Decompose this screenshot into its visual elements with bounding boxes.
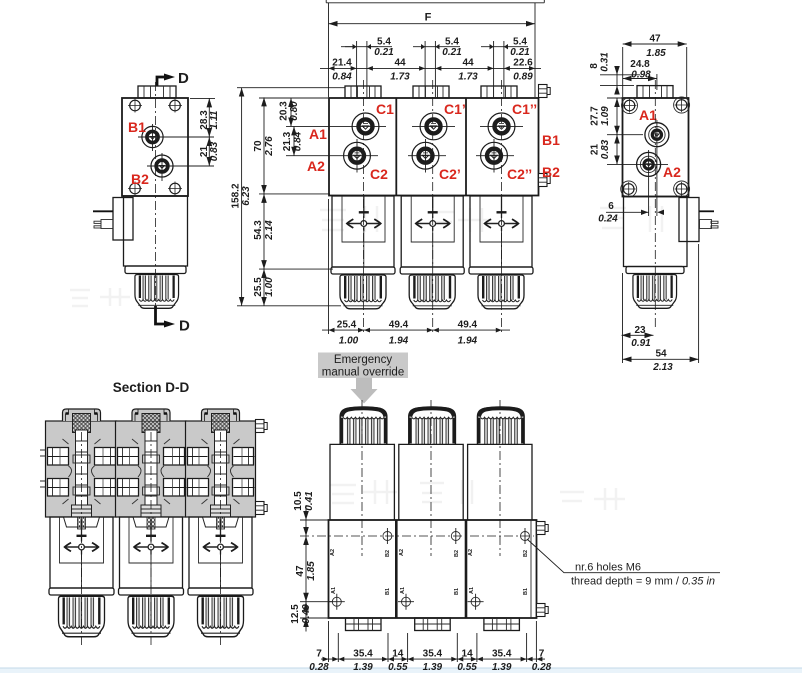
svg-text:1.09: 1.09 [600,106,611,126]
svg-text:25.4: 25.4 [337,320,357,331]
svg-text:27.7: 27.7 [590,106,601,126]
svg-text:12.5: 12.5 [290,604,301,624]
svg-text:2.13: 2.13 [652,362,673,373]
svg-text:0.28: 0.28 [309,662,329,673]
svg-text:1.85: 1.85 [646,48,666,59]
svg-text:20.3: 20.3 [279,101,290,121]
svg-text:35.4: 35.4 [353,649,373,660]
svg-text:158.2: 158.2 [231,183,242,208]
svg-text:0.21: 0.21 [510,47,530,58]
svg-text:47: 47 [649,34,661,45]
svg-text:7: 7 [316,649,322,660]
svg-text:1.11: 1.11 [209,110,220,129]
svg-text:F: F [425,12,432,24]
svg-text:A1: A1 [331,587,337,594]
svg-text:49.4: 49.4 [389,320,409,331]
svg-text:B1: B1 [454,588,460,595]
svg-text:B2: B2 [523,550,529,557]
svg-text:1.85: 1.85 [306,561,317,581]
svg-text:8: 8 [589,63,600,69]
svg-text:A2: A2 [663,164,681,180]
svg-text:21.3: 21.3 [282,131,293,151]
svg-text:C1’: C1’ [444,101,466,117]
svg-text:B1: B1 [385,588,391,595]
svg-text:1.39: 1.39 [353,662,373,673]
svg-text:35.4: 35.4 [492,649,512,660]
svg-text:35.4: 35.4 [423,649,443,660]
svg-text:0.80: 0.80 [289,101,300,121]
svg-text:1.94: 1.94 [458,336,478,347]
svg-text:10.5: 10.5 [293,491,304,511]
svg-text:D: D [178,70,189,87]
svg-text:44: 44 [462,58,474,69]
svg-text:1.39: 1.39 [492,662,512,673]
svg-text:14: 14 [462,649,474,660]
svg-text:22.6: 22.6 [513,58,533,69]
svg-text:24.8: 24.8 [630,59,650,70]
svg-text:A1: A1 [469,587,475,594]
svg-text:1.00: 1.00 [339,336,359,347]
svg-text:44: 44 [394,58,406,69]
svg-text:0.21: 0.21 [442,47,462,58]
svg-text:0.55: 0.55 [457,662,477,673]
svg-text:0.89: 0.89 [513,72,533,83]
svg-text:B1: B1 [128,119,146,135]
svg-text:0.55: 0.55 [388,662,408,673]
svg-text:21: 21 [590,144,601,156]
svg-text:1.73: 1.73 [458,72,478,83]
svg-text:0.91: 0.91 [631,338,651,349]
svg-text:5.4: 5.4 [445,37,459,48]
svg-text:0.49: 0.49 [301,604,312,624]
svg-text:2.76: 2.76 [264,136,275,157]
svg-text:6: 6 [608,201,614,212]
svg-text:thread depth = 9 mm / 0.35 in: thread depth = 9 mm / 0.35 in [571,576,715,588]
svg-text:23: 23 [634,325,646,336]
svg-text:B2: B2 [542,164,560,180]
svg-text:A2: A2 [307,158,325,174]
svg-text:1.94: 1.94 [389,336,409,347]
svg-text:0.84: 0.84 [332,72,352,83]
svg-text:0.84: 0.84 [293,131,304,151]
svg-text:C2’: C2’ [439,166,461,182]
svg-text:A1: A1 [309,126,327,142]
svg-text:B1: B1 [523,588,529,595]
svg-text:54: 54 [655,349,667,360]
svg-text:A1: A1 [639,107,657,123]
svg-text:21.4: 21.4 [332,58,352,69]
svg-text:0.21: 0.21 [374,47,394,58]
svg-text:14: 14 [392,649,404,660]
svg-text:0.31: 0.31 [600,52,611,72]
svg-text:Section D-D: Section D-D [113,380,190,395]
svg-text:A1: A1 [400,587,406,594]
svg-text:C2’’: C2’’ [507,166,532,182]
svg-text:A2: A2 [399,549,405,556]
svg-text:A2: A2 [468,549,474,556]
svg-text:0.28: 0.28 [532,662,552,673]
svg-text:1.00: 1.00 [264,277,275,297]
svg-text:B2: B2 [454,550,460,557]
svg-text:C1: C1 [376,101,394,117]
svg-text:49.4: 49.4 [458,320,478,331]
svg-text:0.83: 0.83 [600,139,611,159]
svg-text:0.41: 0.41 [304,491,315,511]
svg-text:nr.6 holes M6: nr.6 holes M6 [575,562,641,574]
svg-text:0.24: 0.24 [598,214,618,225]
svg-text:C1’’: C1’’ [512,101,537,117]
svg-text:D: D [179,318,190,335]
svg-text:1.73: 1.73 [390,72,410,83]
svg-text:C2: C2 [370,166,388,182]
svg-text:25.5: 25.5 [253,277,264,297]
svg-text:0.83: 0.83 [209,141,220,161]
svg-text:7: 7 [539,649,545,660]
svg-text:B1: B1 [542,132,560,148]
svg-text:47: 47 [295,565,306,577]
svg-text:5.4: 5.4 [377,37,391,48]
svg-text:B2: B2 [385,550,391,557]
svg-text:70: 70 [253,140,264,152]
svg-text:6.23: 6.23 [241,186,252,206]
svg-text:2.14: 2.14 [264,220,275,241]
svg-text:1.39: 1.39 [423,662,443,673]
svg-text:A2: A2 [330,549,336,556]
svg-text:54.3: 54.3 [253,220,264,240]
svg-text:Emergency: Emergency [334,354,392,366]
svg-text:5.4: 5.4 [513,37,527,48]
svg-text:manual override: manual override [322,367,404,379]
svg-text:B2: B2 [131,171,149,187]
